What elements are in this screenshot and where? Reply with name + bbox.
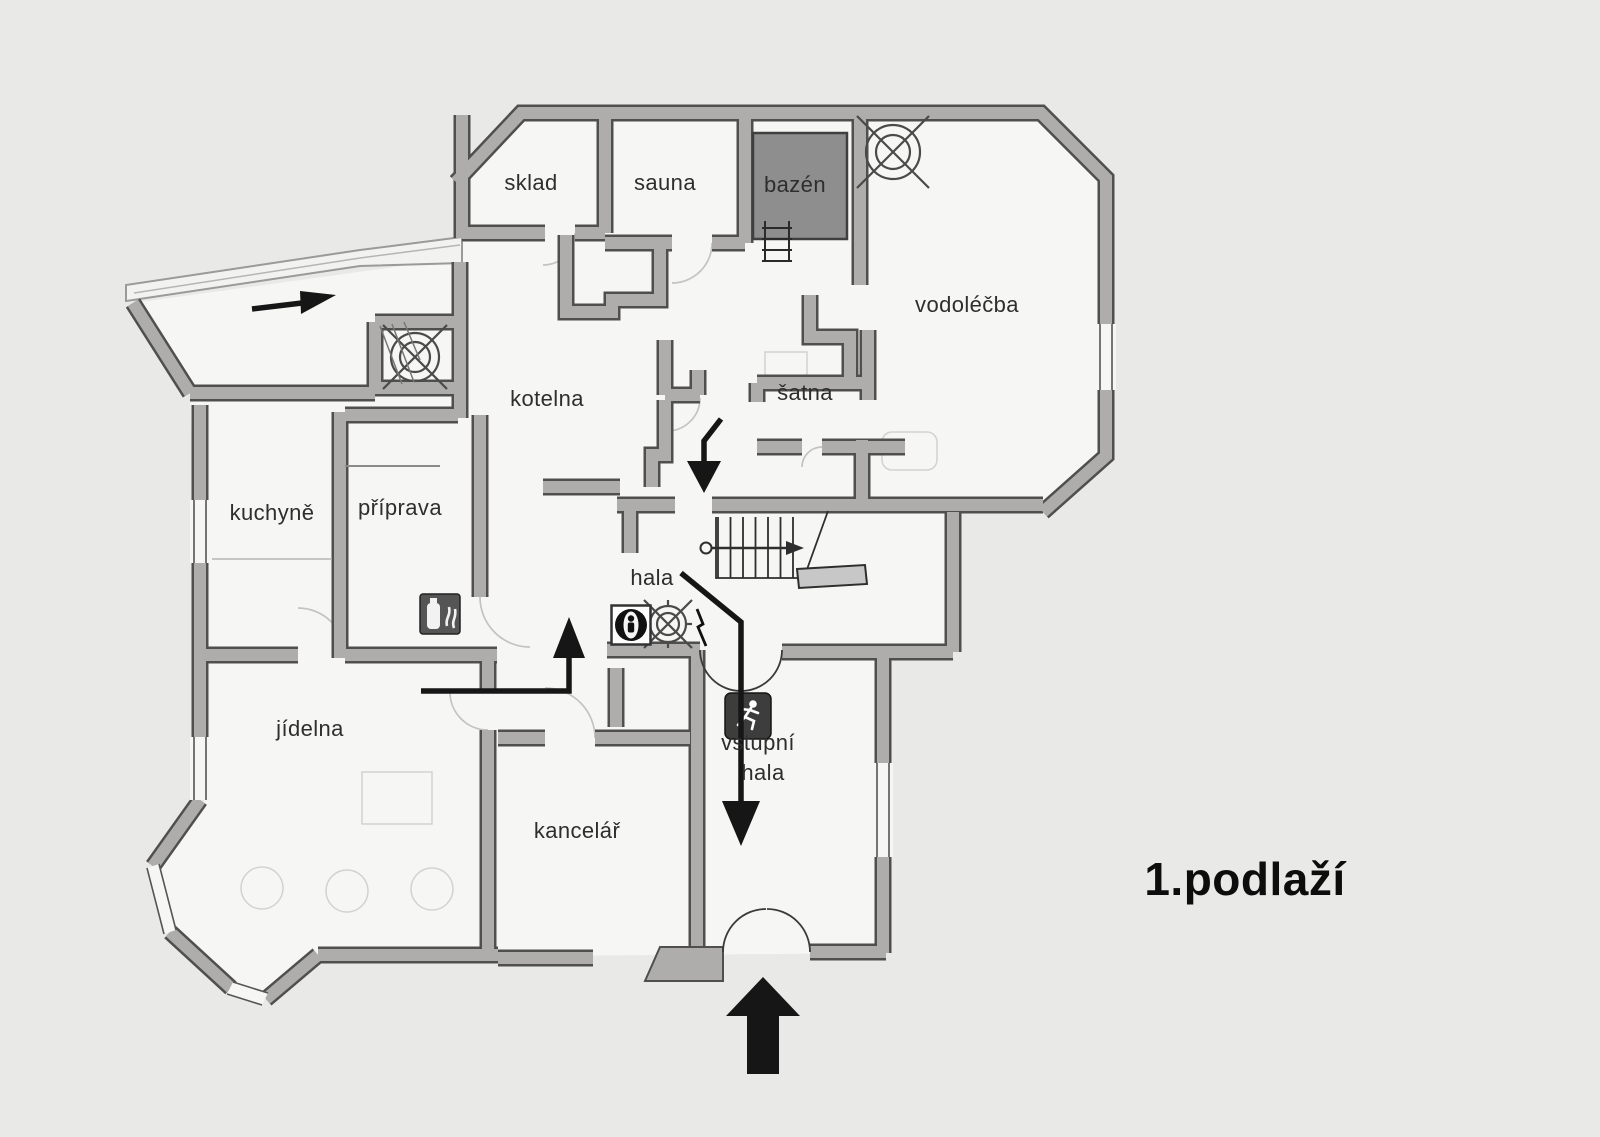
floor-title: 1.podlaží (1144, 853, 1347, 905)
entry-arrow-main-entrance (726, 977, 800, 1074)
floor-plan-svg: sklad sauna bazén vodoléčba kotelna šatn… (0, 0, 1600, 1137)
stair-landing (797, 565, 867, 588)
room-label-kuchyne: kuchyně (230, 500, 315, 525)
room-label-vstupni-hala-line2: hala (741, 760, 785, 785)
room-label-sklad: sklad (504, 170, 557, 195)
room-label-satna: šatna (777, 380, 833, 405)
room-label-kotelna: kotelna (510, 386, 584, 411)
room-label-vodolecba: vodoléčba (915, 292, 1019, 317)
room-label-jidelna: jídelna (275, 716, 344, 741)
bottom-wall-step (645, 947, 723, 981)
room-label-bazen: bazén (764, 172, 826, 197)
room-label-priprava: příprava (358, 495, 442, 520)
room-label-kancelar: kancelář (534, 818, 621, 843)
room-label-vstupni-hala-line1: vstupní (721, 730, 795, 755)
room-label-sauna: sauna (634, 170, 696, 195)
fire-extinguisher-icon (420, 594, 460, 634)
hydrant-icon (612, 606, 651, 645)
room-label-hala: hala (630, 565, 674, 590)
floor-plan-page: sklad sauna bazén vodoléčba kotelna šatn… (0, 0, 1600, 1137)
